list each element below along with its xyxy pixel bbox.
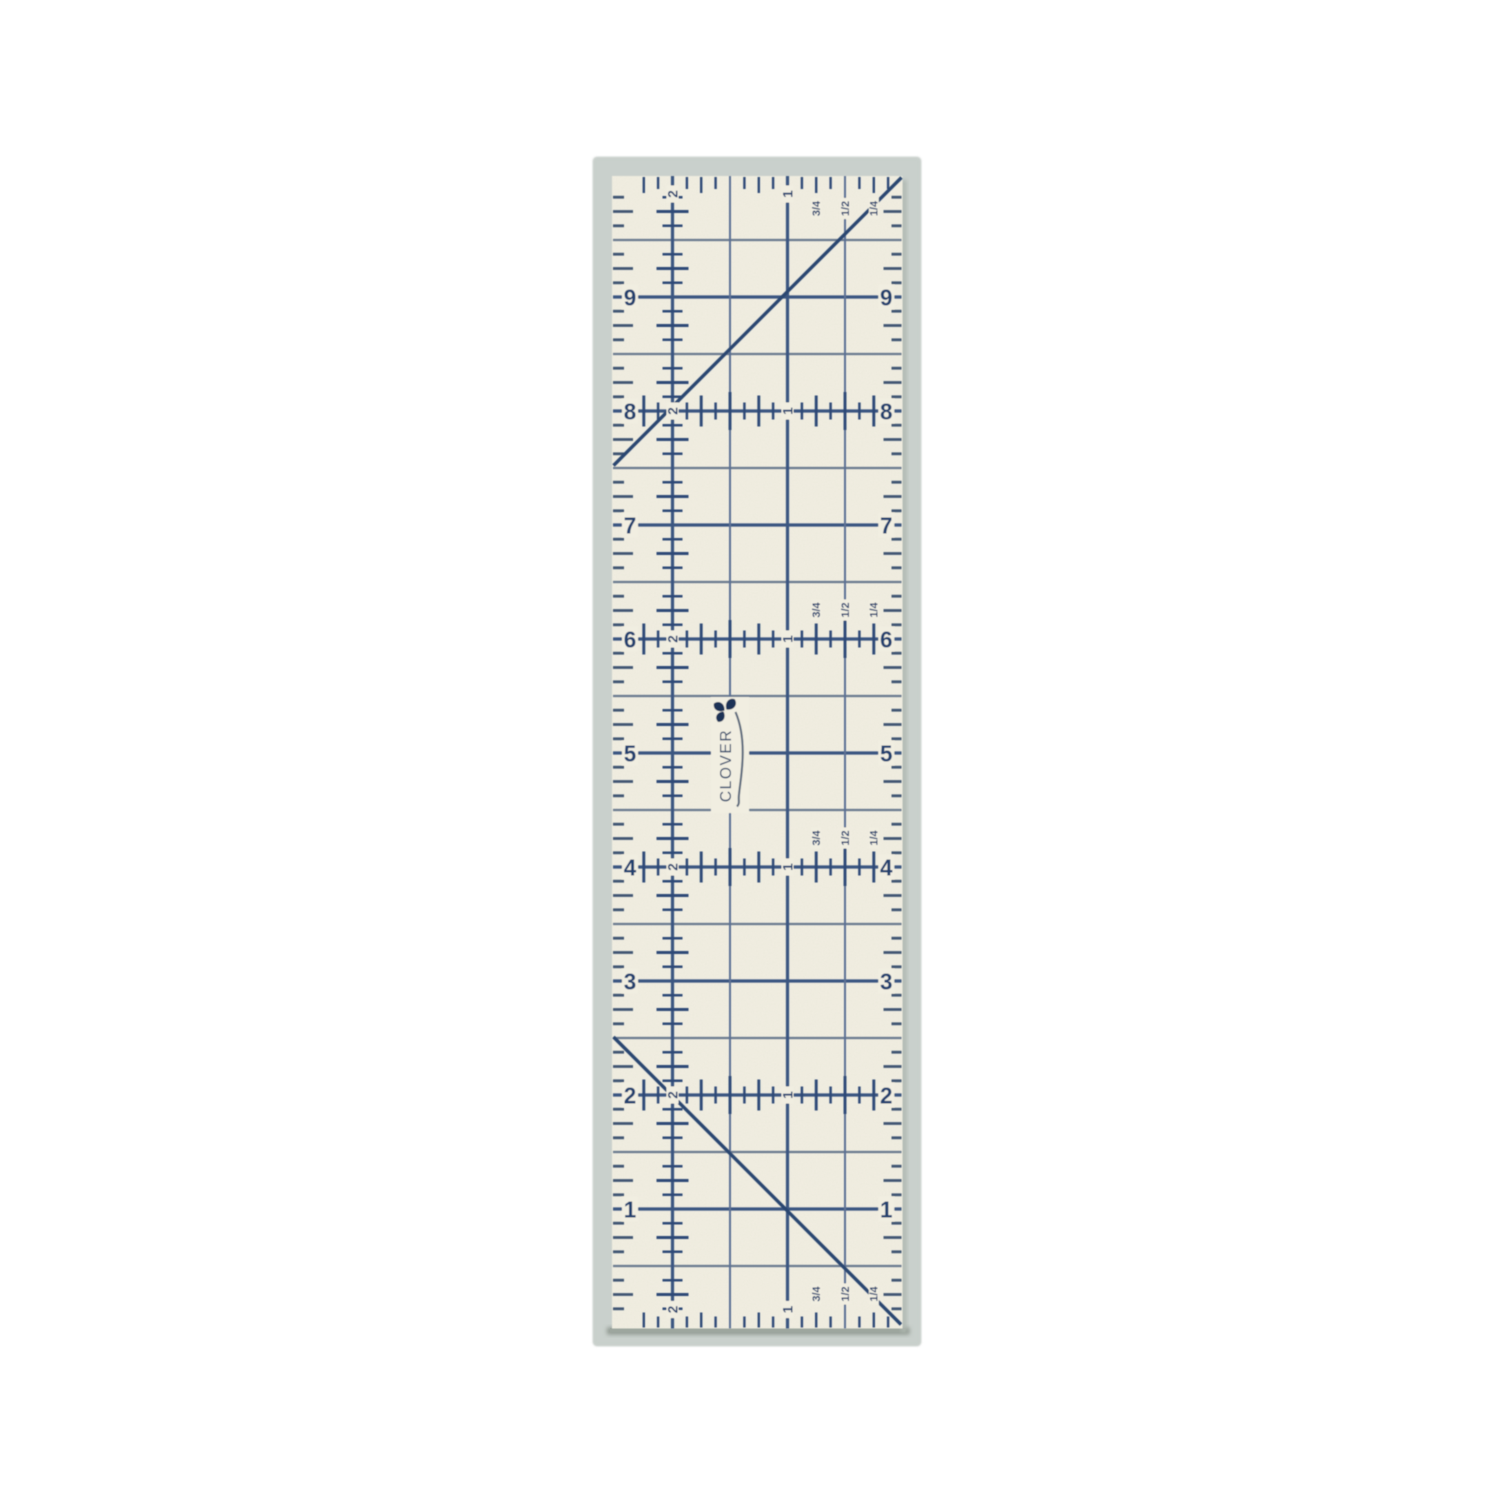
svg-text:3: 3: [880, 968, 893, 994]
svg-text:1: 1: [624, 1196, 637, 1222]
svg-text:5: 5: [880, 740, 893, 766]
svg-text:9: 9: [624, 284, 637, 310]
svg-text:5: 5: [624, 740, 637, 766]
svg-text:1: 1: [781, 1305, 796, 1313]
svg-text:1/2: 1/2: [840, 602, 852, 617]
svg-text:1: 1: [781, 635, 796, 643]
svg-text:1: 1: [781, 1091, 796, 1099]
svg-text:2: 2: [666, 635, 681, 643]
svg-text:9: 9: [880, 284, 893, 310]
svg-text:2: 2: [624, 1082, 637, 1108]
svg-text:1/2: 1/2: [840, 1286, 852, 1301]
svg-text:1: 1: [781, 407, 796, 415]
svg-text:8: 8: [880, 398, 893, 424]
svg-text:1/4: 1/4: [869, 200, 881, 216]
svg-text:1/2: 1/2: [840, 830, 852, 845]
svg-text:6: 6: [880, 626, 893, 652]
svg-text:2: 2: [880, 1082, 893, 1108]
svg-text:4: 4: [624, 854, 637, 880]
svg-text:2: 2: [666, 407, 681, 415]
svg-text:3/4: 3/4: [811, 1285, 823, 1301]
svg-text:1/4: 1/4: [869, 829, 881, 845]
svg-text:2: 2: [666, 1306, 681, 1314]
svg-text:1/4: 1/4: [869, 601, 881, 617]
svg-text:3: 3: [624, 968, 637, 994]
svg-text:CLOVER: CLOVER: [718, 729, 735, 802]
svg-text:1/2: 1/2: [840, 201, 852, 216]
svg-text:6: 6: [624, 626, 637, 652]
svg-text:1: 1: [880, 1196, 893, 1222]
svg-text:2: 2: [666, 863, 681, 871]
svg-text:4: 4: [880, 854, 893, 880]
svg-text:7: 7: [880, 512, 893, 538]
svg-text:3/4: 3/4: [811, 601, 823, 617]
svg-text:3/4: 3/4: [811, 829, 823, 845]
svg-text:8: 8: [624, 398, 637, 424]
svg-text:1: 1: [781, 863, 796, 871]
svg-text:7: 7: [624, 512, 637, 538]
svg-text:2: 2: [666, 1091, 681, 1099]
svg-text:2: 2: [666, 190, 681, 198]
svg-text:3/4: 3/4: [811, 200, 823, 216]
svg-text:1/4: 1/4: [869, 1285, 881, 1301]
svg-text:1: 1: [781, 190, 796, 198]
